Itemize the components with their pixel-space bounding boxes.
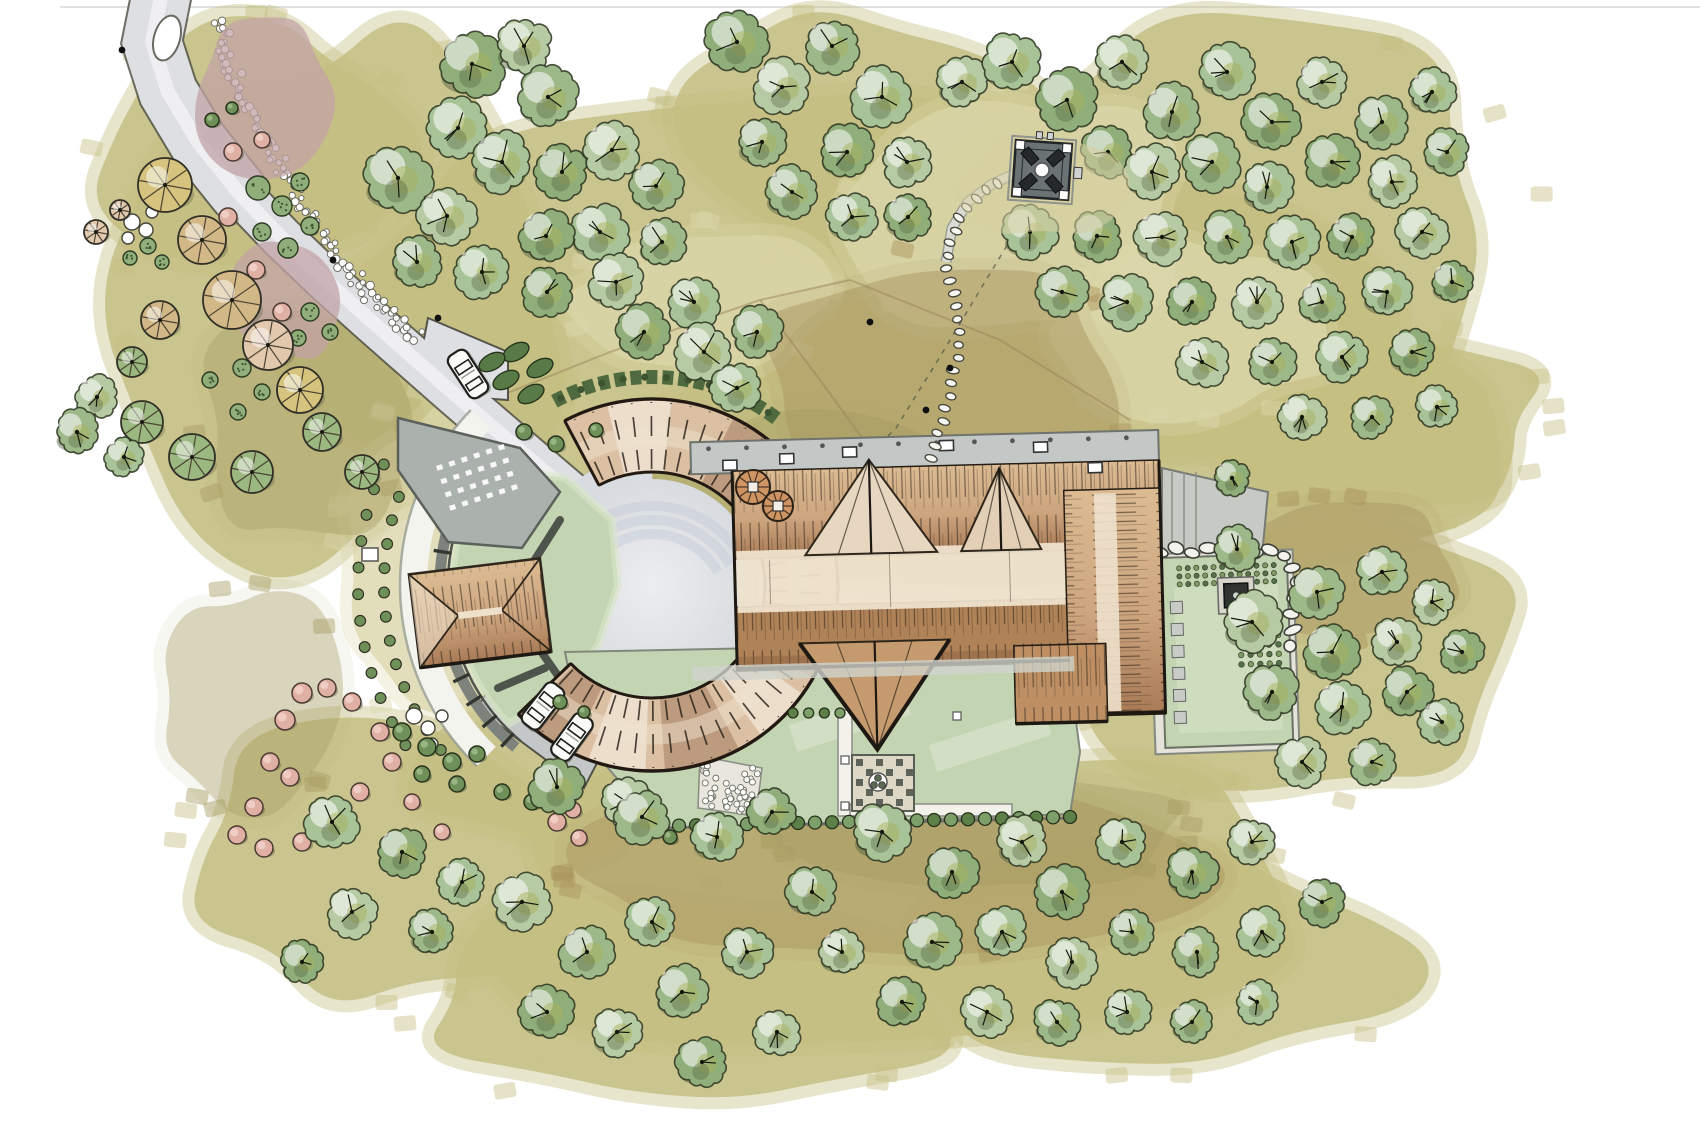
tree [753,1010,801,1055]
tree [925,848,979,899]
tree [854,804,912,862]
tree [997,815,1047,867]
site-plan [0,0,1700,1135]
gatehouse [409,558,551,667]
tree [1237,906,1285,957]
tree [1232,277,1284,329]
tree [668,277,720,329]
tree [1305,134,1360,187]
tree [806,21,860,75]
tree [1289,566,1345,619]
tree [883,137,932,187]
tree [785,867,837,916]
tree [1424,128,1469,176]
tree [1355,95,1408,149]
tree [1034,1000,1081,1046]
tree [1372,618,1422,666]
site-plan-svg [0,0,1700,1135]
tree [1199,42,1255,100]
tree [625,897,675,946]
tree [1035,266,1089,317]
tree [57,408,98,454]
tree [1105,989,1152,1034]
tree [1096,819,1146,867]
tree [378,828,426,878]
tree [1095,35,1148,89]
tree [409,908,453,953]
tree [982,33,1041,89]
tree [709,363,761,412]
tree [1243,161,1294,212]
